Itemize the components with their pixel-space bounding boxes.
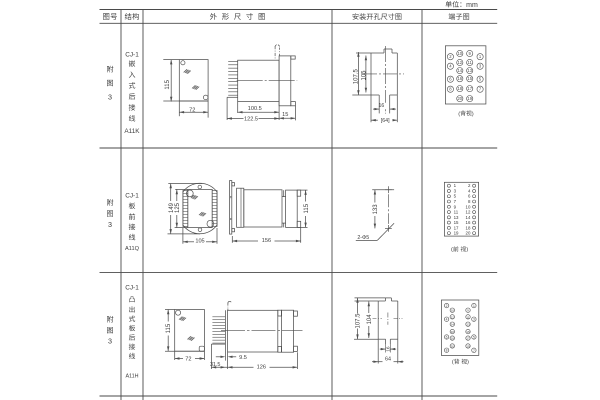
svg-text:5: 5 xyxy=(454,194,457,199)
svg-text:72: 72 xyxy=(189,108,195,114)
svg-text:9: 9 xyxy=(467,309,469,313)
svg-text:5: 5 xyxy=(473,336,475,340)
svg-text:126: 126 xyxy=(257,365,266,371)
svg-text:14: 14 xyxy=(466,215,471,220)
svg-text:20: 20 xyxy=(466,231,471,236)
svg-text:3: 3 xyxy=(108,93,112,102)
svg-text:9: 9 xyxy=(454,204,457,209)
svg-text:15: 15 xyxy=(467,76,472,81)
svg-text:1: 1 xyxy=(454,183,457,188)
svg-text:11: 11 xyxy=(454,210,459,215)
svg-text:): ) xyxy=(466,247,468,253)
svg-text:19: 19 xyxy=(467,96,472,101)
svg-text:18: 18 xyxy=(466,225,471,230)
svg-text:15: 15 xyxy=(454,220,459,225)
svg-text:3: 3 xyxy=(454,188,457,193)
svg-text:13: 13 xyxy=(466,323,470,327)
svg-text:2: 2 xyxy=(446,304,448,308)
svg-text:16: 16 xyxy=(379,103,385,109)
svg-text:7: 7 xyxy=(479,87,482,92)
svg-text:13: 13 xyxy=(454,215,459,220)
svg-text:16: 16 xyxy=(451,330,455,334)
svg-text:(: ( xyxy=(451,247,453,253)
svg-text:104: 104 xyxy=(367,314,373,325)
svg-text:19: 19 xyxy=(454,231,459,236)
svg-text:12: 12 xyxy=(466,210,471,215)
svg-text:8: 8 xyxy=(449,87,452,92)
svg-text:6: 6 xyxy=(446,336,448,340)
svg-text:17: 17 xyxy=(466,337,470,341)
svg-text:115: 115 xyxy=(165,79,171,89)
svg-text:72: 72 xyxy=(185,357,191,363)
svg-text:13: 13 xyxy=(467,68,472,73)
svg-text:CJ-1: CJ-1 xyxy=(125,192,139,199)
svg-text:1: 1 xyxy=(473,304,475,308)
svg-text:115: 115 xyxy=(304,203,310,213)
svg-text:9.5: 9.5 xyxy=(239,355,247,361)
svg-text:3: 3 xyxy=(108,220,112,229)
svg-text:16: 16 xyxy=(386,346,392,352)
svg-text:4: 4 xyxy=(468,188,471,193)
svg-text:10: 10 xyxy=(457,51,462,56)
svg-text:8: 8 xyxy=(446,349,448,353)
svg-text:3: 3 xyxy=(479,64,482,69)
svg-text:115: 115 xyxy=(166,323,172,333)
svg-text:18: 18 xyxy=(451,337,455,341)
svg-text:(: ( xyxy=(452,360,454,366)
svg-text:14: 14 xyxy=(457,68,462,73)
svg-text:17: 17 xyxy=(454,225,459,230)
svg-text:3: 3 xyxy=(473,318,475,322)
svg-text:7: 7 xyxy=(473,349,475,353)
svg-text:10: 10 xyxy=(451,309,455,313)
svg-text:6: 6 xyxy=(449,77,452,82)
svg-text:31.5: 31.5 xyxy=(210,362,221,368)
svg-text:15: 15 xyxy=(466,330,470,334)
svg-text:125: 125 xyxy=(175,202,181,213)
svg-text:A11H: A11H xyxy=(125,373,138,379)
svg-text:105: 105 xyxy=(361,70,367,81)
svg-text:11: 11 xyxy=(468,60,473,65)
svg-text:): ) xyxy=(472,111,474,117)
svg-text:3: 3 xyxy=(108,337,112,346)
svg-text:): ) xyxy=(467,360,469,366)
svg-text:16: 16 xyxy=(466,220,471,225)
svg-text:CJ-1: CJ-1 xyxy=(125,52,139,59)
svg-text:A11K: A11K xyxy=(124,128,140,135)
svg-text:m: m xyxy=(472,2,478,9)
svg-text:7: 7 xyxy=(454,199,457,204)
svg-text:(: ( xyxy=(458,111,460,117)
svg-text:122.5: 122.5 xyxy=(244,116,258,122)
svg-text:100.5: 100.5 xyxy=(248,106,262,112)
svg-text:5: 5 xyxy=(479,77,482,82)
svg-text:2: 2 xyxy=(449,54,452,59)
svg-text:105: 105 xyxy=(195,239,204,245)
svg-text:[64]: [64] xyxy=(381,118,390,124)
svg-text:19: 19 xyxy=(466,345,470,349)
svg-text:12: 12 xyxy=(457,60,462,65)
svg-text:6: 6 xyxy=(468,194,471,199)
svg-text:15: 15 xyxy=(282,112,288,118)
svg-text:18: 18 xyxy=(457,86,462,91)
svg-text:2: 2 xyxy=(468,183,471,188)
svg-text:107.5: 107.5 xyxy=(356,313,362,329)
svg-text:20: 20 xyxy=(457,96,462,101)
svg-text:156: 156 xyxy=(262,238,271,244)
svg-text:20: 20 xyxy=(451,345,455,349)
svg-text:2-Φ5: 2-Φ5 xyxy=(357,235,369,241)
svg-text:CJ-1: CJ-1 xyxy=(125,284,139,291)
svg-text:16: 16 xyxy=(457,76,462,81)
svg-text:64: 64 xyxy=(385,356,391,362)
svg-text:4: 4 xyxy=(446,318,448,322)
svg-text:10: 10 xyxy=(466,204,471,209)
svg-text:17: 17 xyxy=(467,86,472,91)
svg-text:14: 14 xyxy=(451,323,455,327)
svg-text:107.5: 107.5 xyxy=(354,69,360,85)
svg-text:A11Q: A11Q xyxy=(125,246,140,252)
svg-text:149: 149 xyxy=(169,202,175,213)
svg-text:11: 11 xyxy=(466,315,469,319)
svg-text:133: 133 xyxy=(373,204,379,215)
svg-text:1: 1 xyxy=(479,54,482,59)
svg-text:12: 12 xyxy=(451,315,455,319)
svg-text:8: 8 xyxy=(468,199,471,204)
svg-text:9: 9 xyxy=(469,51,472,56)
svg-text:4: 4 xyxy=(449,64,452,69)
